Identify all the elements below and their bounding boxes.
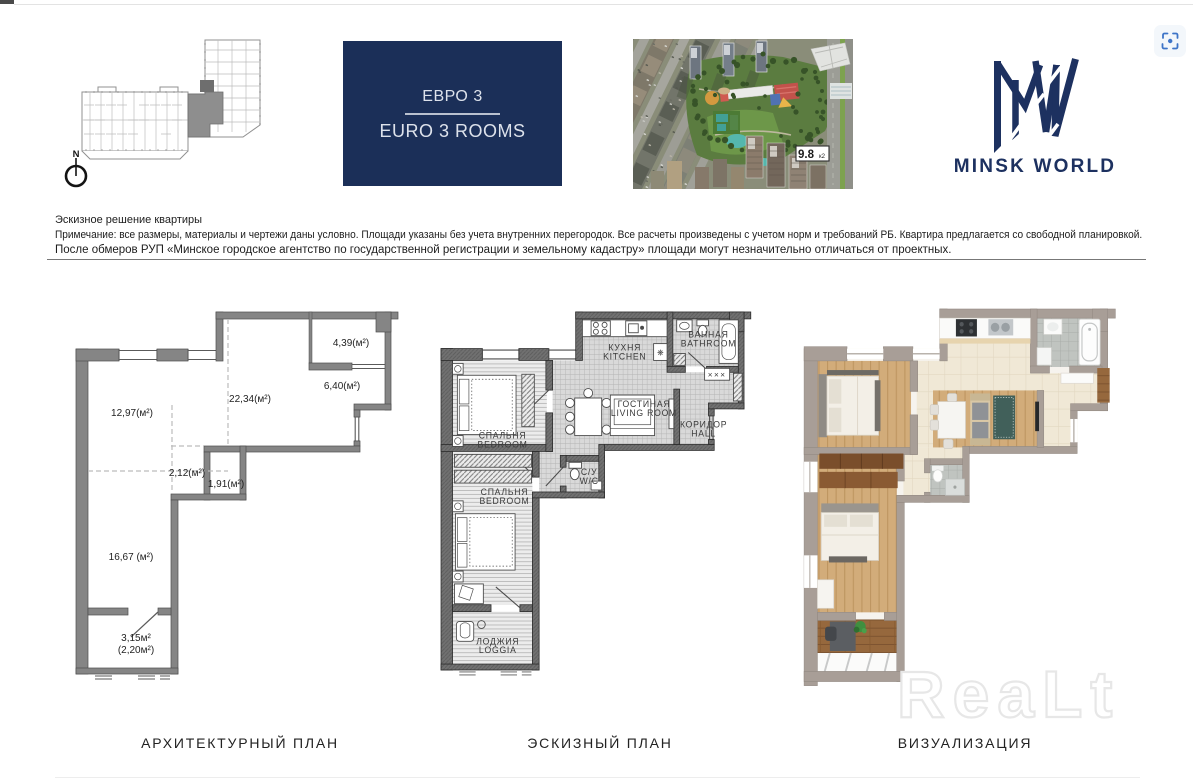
svg-text:3,15м²: 3,15м² — [121, 633, 151, 644]
svg-text:❋: ❋ — [657, 348, 664, 357]
svg-text:KITCHEN: KITCHEN — [603, 351, 646, 361]
svg-text:BEDROOM: BEDROOM — [479, 496, 529, 506]
svg-text:12,97(м²): 12,97(м²) — [111, 408, 153, 419]
svg-text:4,39(м²): 4,39(м²) — [333, 338, 369, 349]
svg-text:(2,20м²): (2,20м²) — [118, 645, 154, 656]
svg-text:LOGGIA: LOGGIA — [479, 645, 517, 655]
svg-text:16,67 (м²): 16,67 (м²) — [109, 552, 154, 563]
svg-text:6,40(м²): 6,40(м²) — [324, 381, 360, 392]
svg-text:W/C: W/C — [580, 476, 599, 486]
svg-text:1,91(м²): 1,91(м²) — [208, 479, 244, 490]
svg-text:2,12(м²): 2,12(м²) — [169, 468, 205, 479]
svg-text:BEDROOM: BEDROOM — [478, 439, 528, 449]
svg-text:22,34(м²): 22,34(м²) — [229, 394, 271, 405]
svg-text:×××: ××× — [708, 370, 727, 380]
svg-text:BATHROOM: BATHROOM — [681, 338, 736, 348]
svg-text:LIVING ROOM: LIVING ROOM — [611, 408, 677, 418]
svg-text:HALL: HALL — [691, 428, 716, 438]
